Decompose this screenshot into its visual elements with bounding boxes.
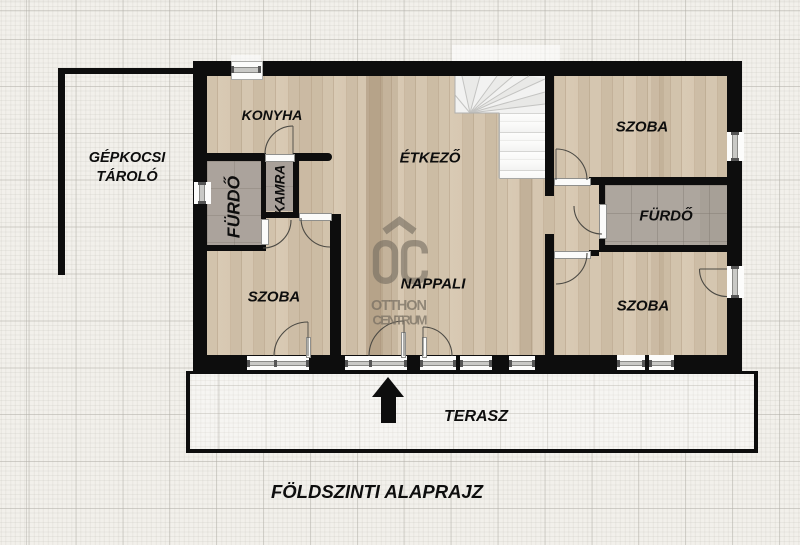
svg-text:CENTRUM: CENTRUM <box>373 313 428 328</box>
